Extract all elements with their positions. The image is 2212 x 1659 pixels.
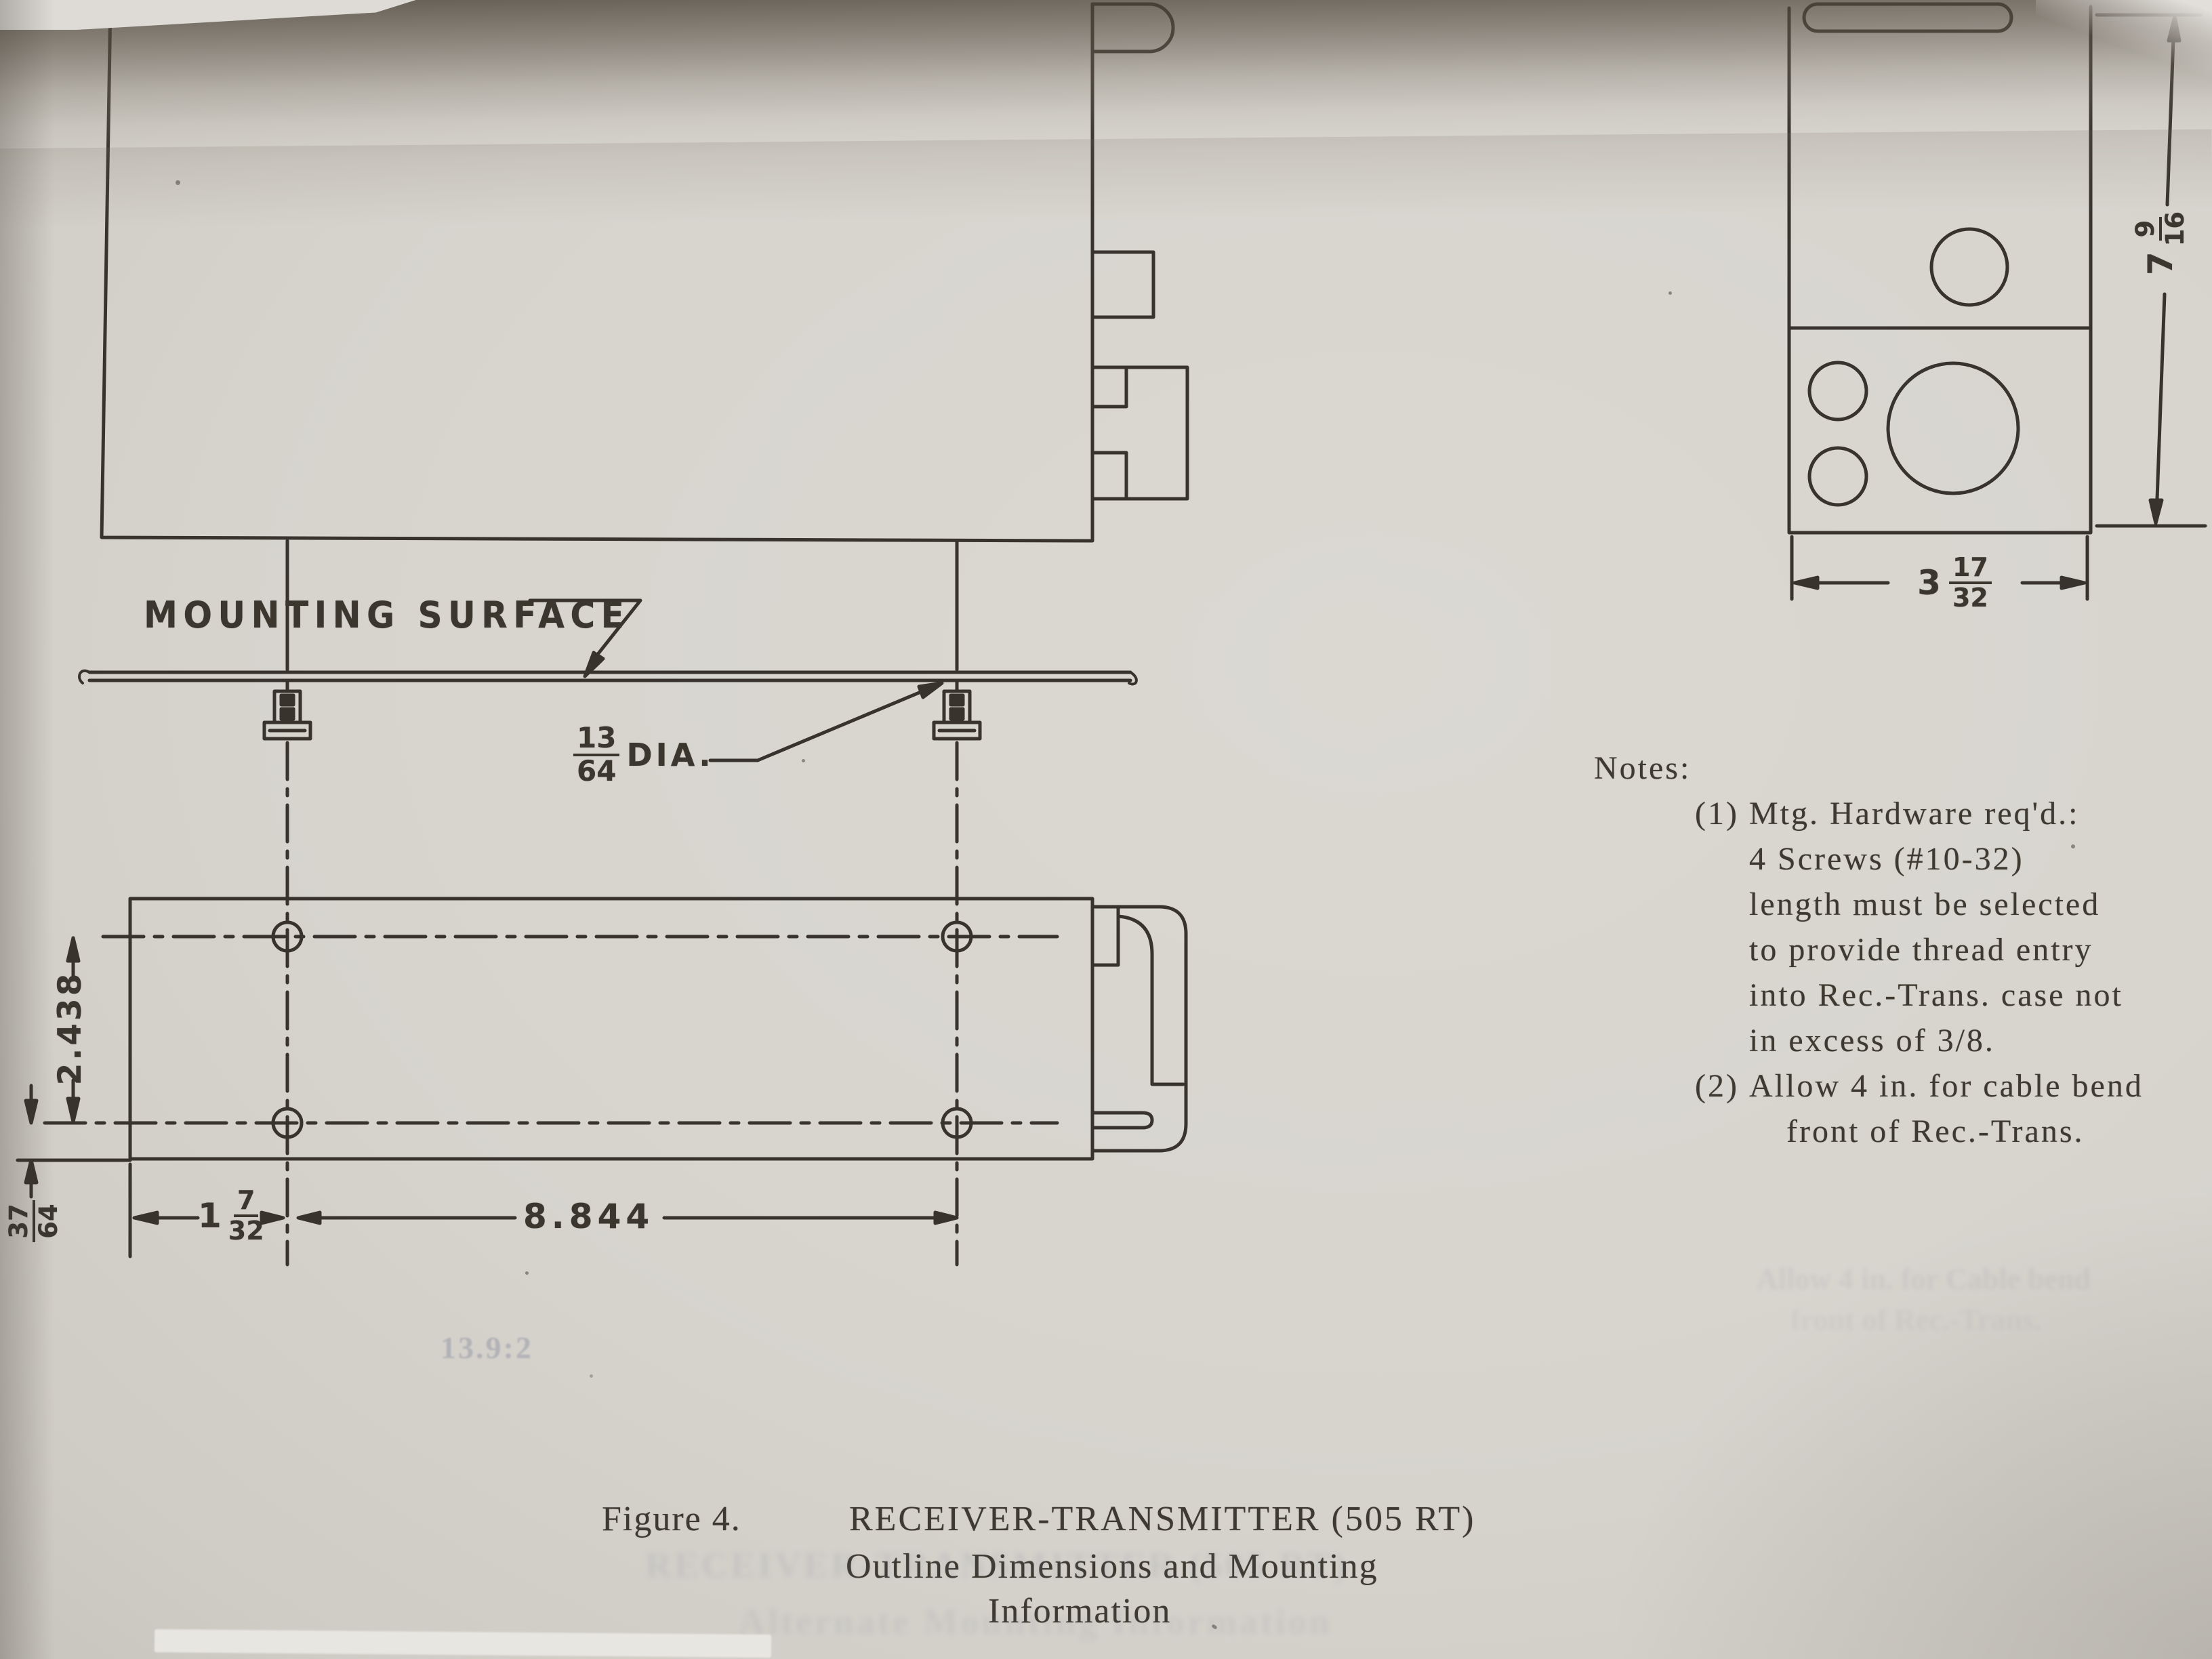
hole-dia-fraction: 13 64	[573, 724, 619, 786]
hole-dia-leader	[710, 683, 942, 760]
figure-caption-label: Figure 4.	[602, 1499, 741, 1539]
figure-caption-subtitle: Outline Dimensions and Mounting	[846, 1547, 1378, 1586]
dim-2438-label: 2.438	[51, 977, 89, 1079]
dim-8844-label: 8.844	[523, 1197, 654, 1236]
projection-lines	[45, 541, 1057, 1265]
manual-page-photo: MOUNTING SURFACE 13 64 DIA. 2.438 37 64 …	[0, 0, 2212, 1659]
front-large-circle	[1888, 363, 2018, 493]
front-slot	[1804, 4, 2011, 31]
cable-connector-block	[1092, 367, 1187, 499]
screw-left-icon	[264, 691, 310, 739]
dim-front-lines	[1792, 15, 2205, 599]
front-view	[1789, 4, 2091, 533]
antenna-connector-tab	[1092, 4, 1173, 52]
screw-right-icon	[934, 691, 980, 739]
dim-3764-label: 37 64	[12, 1191, 56, 1252]
note-item-2: (2) Allow 4 in. for cable bend	[1594, 1063, 2144, 1109]
dim-1-7-32-label: 1 7 32	[198, 1187, 264, 1244]
figure-caption-subtitle2: Information	[988, 1591, 1171, 1631]
notes-block: Notes: (1) Mtg. Hardware req'd.: 4 Screw…	[1594, 745, 2144, 1154]
dim-front-height-label: 7 9 16	[2130, 188, 2191, 299]
notes-heading: Notes:	[1594, 745, 2144, 791]
front-small-circle	[1809, 363, 1866, 419]
front-small-circle	[1809, 448, 1866, 505]
front-connector-circle	[1931, 229, 2007, 305]
small-connector-tab	[1092, 252, 1153, 317]
hole-dia-label: 13 64 DIA.	[573, 724, 714, 786]
note-item-1: (1) Mtg. Hardware req'd.:	[1594, 791, 2144, 836]
dim-front-width-label: 3 17 32	[1893, 550, 2015, 615]
mounting-surface-label: MOUNTING SURFACE	[144, 594, 630, 636]
figure-caption-title: RECEIVER-TRANSMITTER (505 RT)	[849, 1499, 1475, 1539]
side-view	[102, 4, 1187, 541]
mounting-surface-line	[79, 671, 1136, 684]
